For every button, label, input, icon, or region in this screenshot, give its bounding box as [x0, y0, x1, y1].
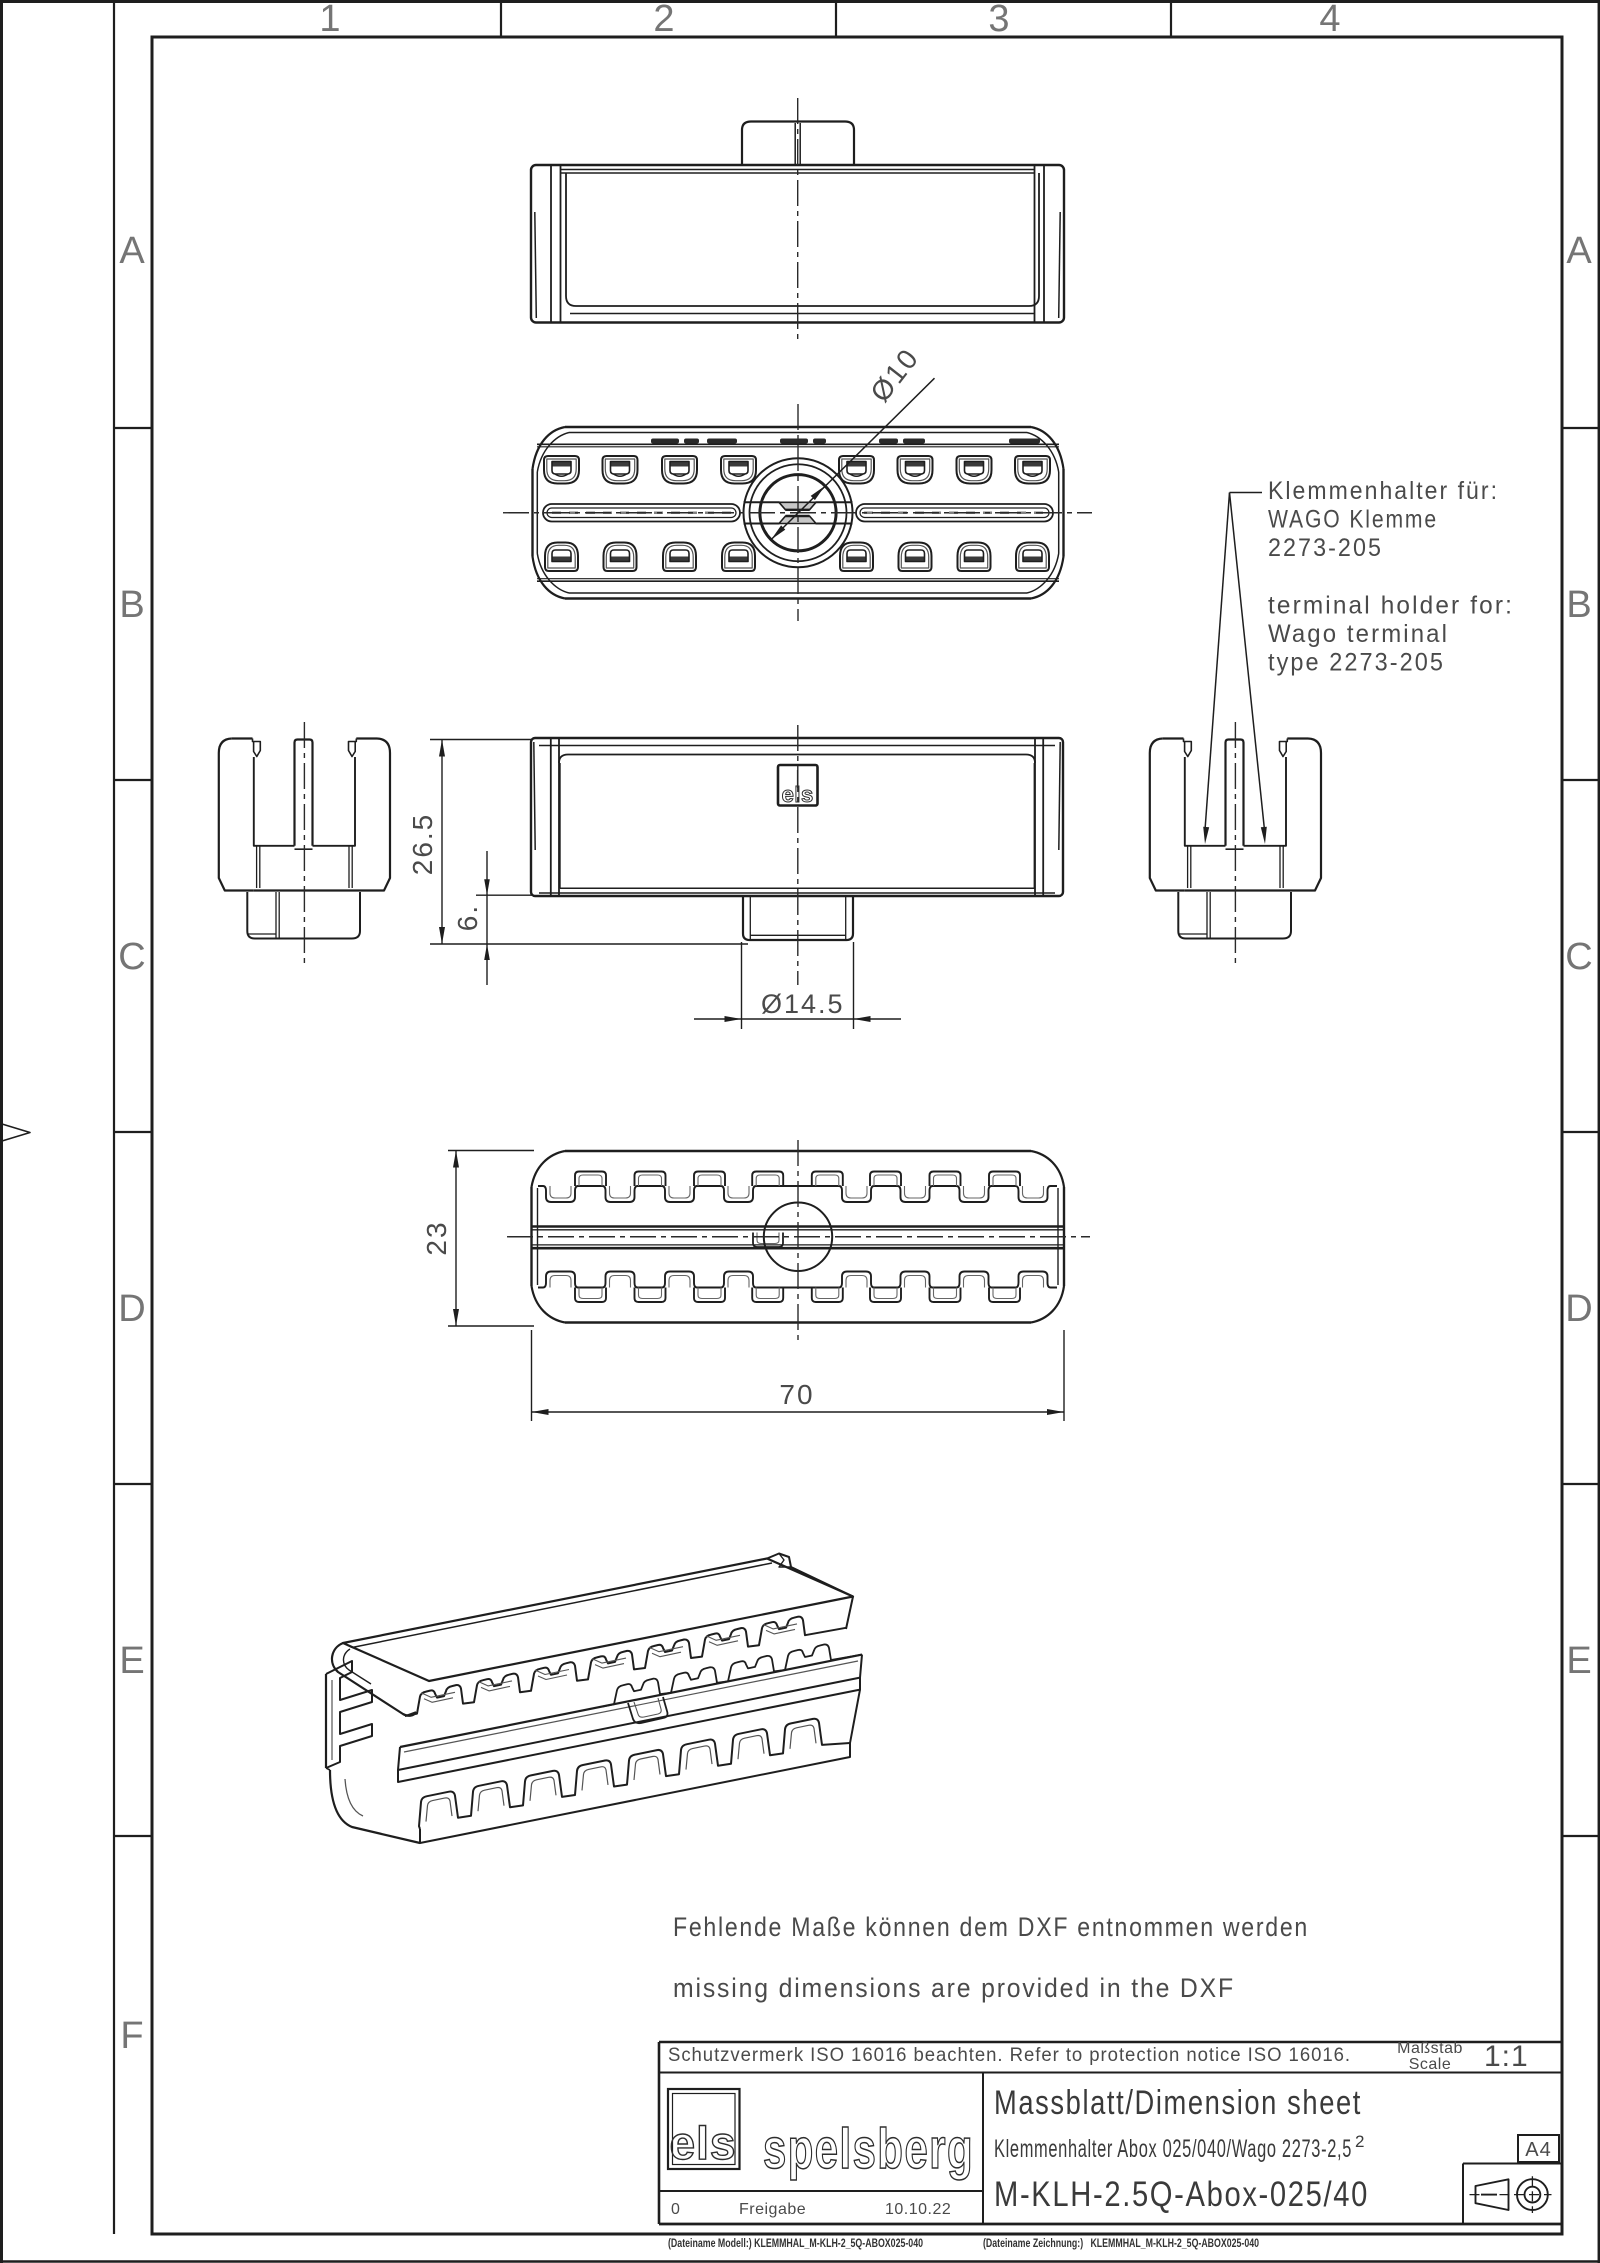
svg-text:B: B [119, 584, 144, 626]
svg-text:2: 2 [1355, 2132, 1364, 2151]
svg-text:missing dimensions are provide: missing dimensions are provided in the D… [673, 1973, 1235, 2003]
svg-text:Massblatt/Dimension sheet: Massblatt/Dimension sheet [994, 2084, 1362, 2122]
svg-text:A: A [119, 230, 145, 272]
svg-text:2273-205: 2273-205 [1268, 534, 1383, 562]
svg-text:2: 2 [653, 0, 674, 40]
svg-text:F: F [120, 2015, 143, 2057]
svg-text:terminal holder for:: terminal holder for: [1268, 592, 1514, 620]
svg-text:1: 1 [319, 0, 340, 40]
svg-text:WAGO Klemme: WAGO Klemme [1268, 506, 1438, 534]
svg-text:0: 0 [671, 2201, 680, 2218]
svg-text:B: B [1566, 584, 1591, 626]
svg-text:A: A [1566, 230, 1592, 272]
svg-text:6.: 6. [452, 904, 483, 931]
svg-text:Schutzvermerk ISO 16016 beacht: Schutzvermerk ISO 16016 beachten. Refer … [668, 2044, 1351, 2066]
svg-text:Ø10: Ø10 [864, 342, 925, 408]
svg-text:A4: A4 [1525, 2139, 1551, 2161]
svg-text:26.5: 26.5 [407, 813, 438, 876]
svg-text:(Dateiname Zeichnung:) KLEMM: (Dateiname Zeichnung:) KLEMMHAL_M-KLH-2_… [983, 2236, 1259, 2250]
svg-text:E: E [1566, 1640, 1591, 1682]
svg-text:3: 3 [988, 0, 1009, 40]
svg-text:70: 70 [779, 1379, 814, 1410]
svg-text:Klemmenhalter für:: Klemmenhalter für: [1268, 477, 1499, 505]
svg-text:spelsberg: spelsberg [763, 2117, 974, 2181]
svg-text:M-KLH-2.5Q-Abox-025/40: M-KLH-2.5Q-Abox-025/40 [994, 2174, 1369, 2214]
svg-text:4: 4 [1319, 0, 1340, 40]
svg-text:Freigabe: Freigabe [739, 2201, 806, 2218]
svg-text:D: D [1565, 1288, 1592, 1330]
svg-text:Scale: Scale [1409, 2056, 1452, 2073]
svg-text:els: els [670, 2117, 737, 2169]
svg-text:Klemmenhalter Abox 025/040/Wag: Klemmenhalter Abox 025/040/Wago 2273-2,5 [994, 2135, 1352, 2163]
svg-text:10.10.22: 10.10.22 [885, 2201, 951, 2218]
svg-text:E: E [119, 1640, 144, 1682]
svg-text:C: C [118, 936, 145, 978]
svg-text:D: D [118, 1288, 145, 1330]
svg-text:Maßstab: Maßstab [1397, 2040, 1463, 2057]
svg-text:Ø14.5: Ø14.5 [761, 989, 845, 1019]
svg-text:1:1: 1:1 [1484, 2040, 1529, 2073]
svg-text:Wago terminal: Wago terminal [1268, 620, 1449, 648]
svg-text:type 2273-205: type 2273-205 [1268, 649, 1445, 677]
svg-text:(Dateiname Modell:) KLEMMHAL_M: (Dateiname Modell:) KLEMMHAL_M-KLH-2_5Q-… [668, 2236, 923, 2250]
svg-text:23: 23 [421, 1220, 452, 1255]
svg-text:C: C [1565, 936, 1592, 978]
svg-text:Fehlende Maße können dem DXF e: Fehlende Maße können dem DXF entnommen w… [673, 1912, 1309, 1942]
